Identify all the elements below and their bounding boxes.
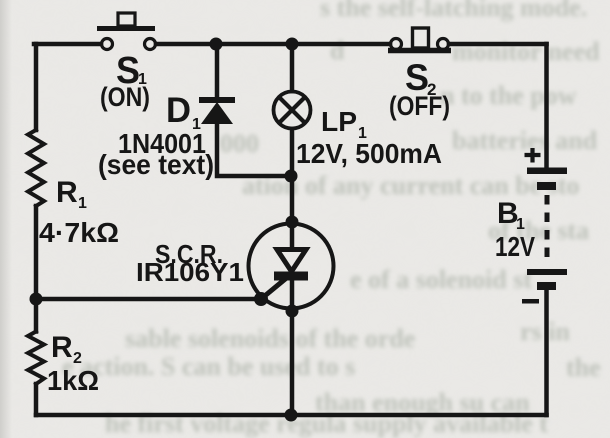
svg-text:12V: 12V (495, 231, 535, 262)
svg-text:n to the pow: n to the pow (440, 81, 577, 110)
svg-text:1: 1 (78, 195, 87, 212)
svg-text:(ON): (ON) (100, 82, 150, 112)
svg-text:LP: LP (321, 106, 357, 137)
svg-text:12V, 500mA: 12V, 500mA (296, 138, 442, 169)
svg-text:monitor need: monitor need (452, 37, 600, 66)
svg-text:(see text): (see text) (98, 149, 214, 180)
svg-text:the: the (566, 353, 601, 382)
svg-text:s the self-latching mode.: s the self-latching mode. (320, 0, 587, 22)
svg-text:e action. S can be used to s: e action. S can be used to s (62, 352, 355, 381)
svg-text:000: 000 (220, 129, 259, 158)
svg-text:batteries and: batteries and (452, 126, 598, 155)
svg-text:(OFF): (OFF) (389, 91, 450, 121)
svg-text:R: R (56, 176, 78, 209)
svg-text:D: D (166, 91, 191, 130)
svg-text:1kΩ: 1kΩ (47, 365, 99, 396)
svg-text:IR106Y1: IR106Y1 (136, 257, 244, 287)
svg-text:sable solenoids of the orde: sable solenoids of the orde (125, 324, 415, 353)
svg-text:4·7kΩ: 4·7kΩ (39, 217, 119, 248)
svg-text:e of a solenoid st: e of a solenoid st (350, 265, 532, 294)
svg-text:R: R (51, 331, 73, 364)
svg-text:d: d (330, 36, 345, 65)
